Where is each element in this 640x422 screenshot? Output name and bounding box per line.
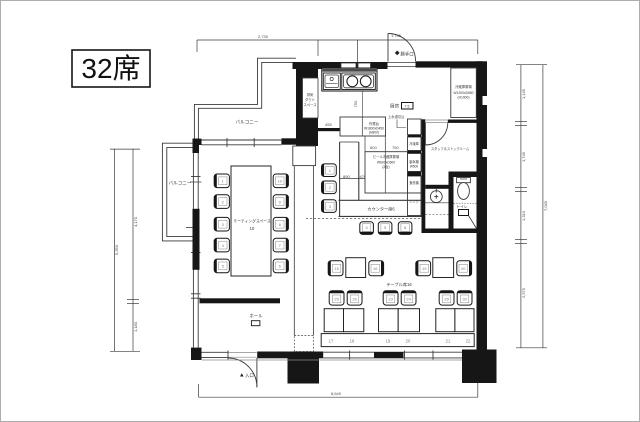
- svg-text:テーブル席16: テーブル席16: [386, 281, 412, 288]
- svg-text:(H800): (H800): [369, 131, 379, 135]
- svg-text:19: 19: [422, 266, 427, 271]
- svg-text:600: 600: [370, 145, 377, 150]
- svg-text:2,730: 2,730: [258, 34, 269, 39]
- svg-text:作業台: 作業台: [369, 121, 380, 126]
- svg-text:食洗機: 食洗機: [409, 180, 419, 185]
- svg-text:750: 750: [353, 100, 358, 107]
- svg-text:W500: W500: [410, 165, 419, 169]
- svg-text:カウンター席6: カウンター席6: [367, 206, 395, 213]
- svg-text:バルコニー: バルコニー: [236, 120, 259, 125]
- svg-text:19: 19: [386, 339, 391, 344]
- svg-text:17: 17: [329, 339, 334, 344]
- svg-text:(2台): (2台): [382, 164, 389, 169]
- svg-text:29: 29: [444, 297, 449, 302]
- svg-text:W1200xD650: W1200xD650: [454, 91, 474, 95]
- svg-text:26: 26: [352, 297, 357, 302]
- svg-text:24: 24: [406, 297, 411, 302]
- svg-text:890: 890: [343, 174, 350, 179]
- svg-text:スペース: スペース: [303, 102, 317, 107]
- svg-text:ビール冷蔵庫置場: ビール冷蔵庫置場: [373, 154, 400, 159]
- svg-text:バルコニー: バルコニー: [169, 181, 192, 186]
- svg-text:トイレ: トイレ: [456, 204, 468, 209]
- svg-text:21: 21: [446, 339, 451, 344]
- svg-text:勝手口: 勝手口: [401, 51, 414, 58]
- svg-text:23: 23: [388, 297, 393, 302]
- svg-text:1,745: 1,745: [521, 151, 526, 162]
- svg-text:ダクト: ダクト: [305, 97, 315, 102]
- svg-text:4,170: 4,170: [133, 216, 138, 227]
- svg-text:25: 25: [334, 297, 339, 302]
- svg-text:18: 18: [350, 339, 355, 344]
- svg-text:排気: 排気: [307, 92, 314, 97]
- svg-text:750: 750: [392, 145, 399, 150]
- svg-text:ホール: ホール: [249, 314, 263, 319]
- svg-text:冷蔵庫置場: 冷蔵庫置場: [455, 84, 472, 89]
- svg-text:10: 10: [250, 226, 255, 231]
- svg-text:8,640: 8,640: [331, 391, 342, 396]
- svg-text:スタッフ＆ストックルーム: スタッフ＆ストックルーム: [431, 146, 469, 151]
- svg-text:入口: 入口: [245, 373, 254, 378]
- svg-text:7.5: 7.5: [405, 105, 410, 109]
- svg-text:32席: 32席: [81, 53, 140, 84]
- svg-text:7,040: 7,040: [543, 200, 548, 211]
- svg-text:20: 20: [461, 266, 466, 271]
- svg-text:冷凍庫: 冷凍庫: [409, 141, 419, 146]
- svg-text:5,350: 5,350: [114, 244, 119, 255]
- svg-text:厨房: 厨房: [390, 103, 400, 110]
- svg-text:10: 10: [278, 179, 283, 184]
- svg-text:W600xD600: W600xD600: [377, 161, 395, 165]
- svg-text:上水道引込: 上水道引込: [388, 114, 405, 119]
- svg-text:30: 30: [462, 297, 467, 302]
- svg-text:製氷機: 製氷機: [409, 159, 419, 164]
- svg-text:2,575: 2,575: [521, 287, 526, 298]
- svg-text:16: 16: [373, 266, 378, 271]
- svg-text:1,310: 1,310: [521, 210, 526, 221]
- svg-text:20: 20: [406, 339, 411, 344]
- svg-text:22: 22: [466, 339, 471, 344]
- svg-text:1,145: 1,145: [521, 88, 526, 99]
- svg-text:(H1900): (H1900): [458, 96, 470, 100]
- svg-text:15: 15: [334, 266, 339, 271]
- svg-text:1,180: 1,180: [133, 321, 138, 332]
- svg-text:455: 455: [325, 122, 332, 127]
- svg-text:ミーティングスペース: ミーティングスペース: [233, 219, 270, 224]
